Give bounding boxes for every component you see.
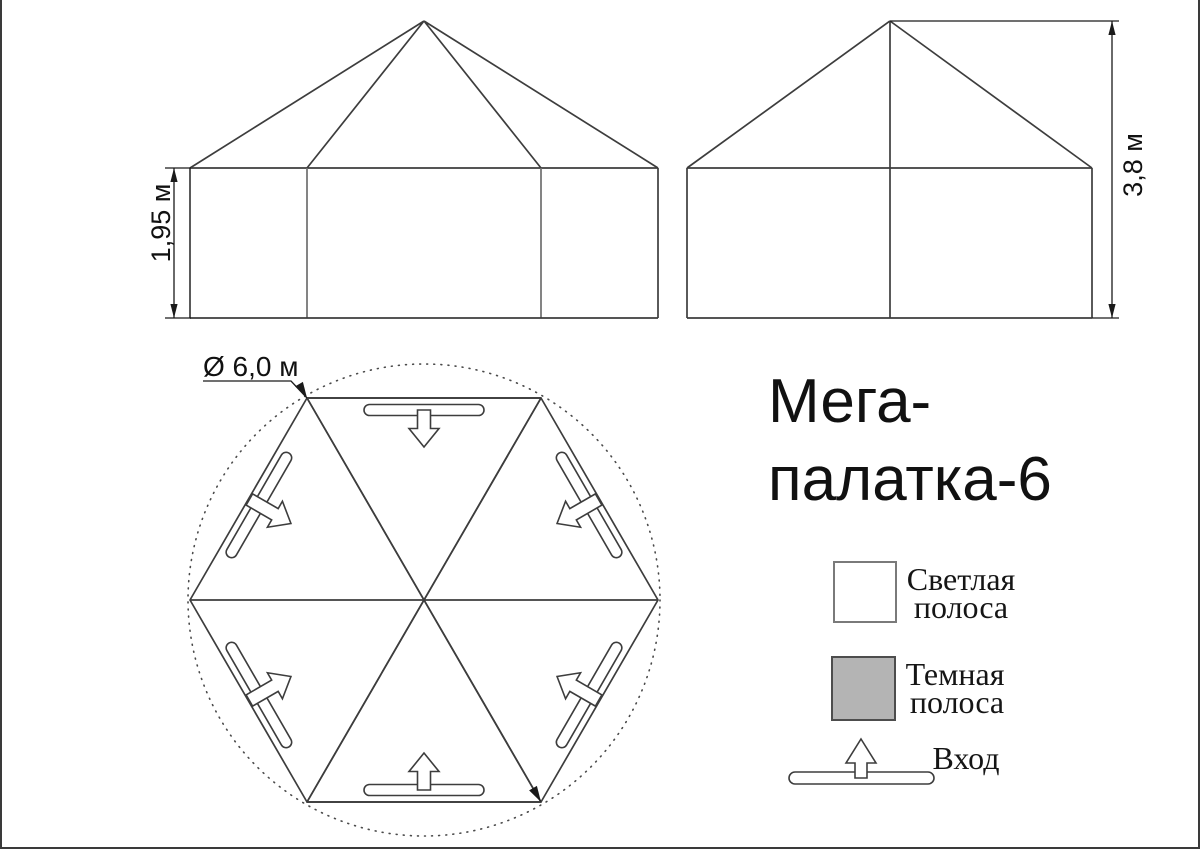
legend-dark-swatch <box>832 657 895 720</box>
tent-technical-drawing-page: 1,95 м 3,8 м <box>0 0 1200 849</box>
dimension-arrow-icon <box>1108 21 1115 35</box>
wall-height-label: 1,95 м <box>146 184 176 263</box>
total-height-label: 3,8 м <box>1118 133 1148 197</box>
legend-item-light-stripe: Светлая полоса <box>834 561 1016 625</box>
diameter-label: Ø 6,0 м <box>203 351 299 382</box>
page-title: Мега- палатка-6 <box>768 367 1052 514</box>
front-elevation-view: 1,95 м <box>146 21 658 318</box>
tent-technical-drawing: 1,95 м 3,8 м <box>0 0 1200 849</box>
title-line-1: Мега- <box>768 367 931 436</box>
leader-line <box>203 381 307 398</box>
total-height-dimension: 3,8 м <box>890 21 1148 318</box>
dimension-arrow-icon <box>1108 304 1115 318</box>
front-roof-lines <box>190 21 658 168</box>
legend-item-entrance: Вход <box>789 739 1000 784</box>
plan-view: Ø 6,0 м <box>188 351 660 836</box>
legend-dark-label-line-2: полоса <box>910 684 1004 720</box>
title-line-2: палатка-6 <box>768 445 1052 514</box>
legend: Светлая полоса Темная полоса Вход <box>789 561 1016 784</box>
legend-entrance-label: Вход <box>932 740 999 776</box>
dimension-arrow-icon <box>295 382 307 398</box>
dimension-arrow-icon <box>170 304 177 318</box>
legend-light-label-line-2: полоса <box>914 589 1008 625</box>
legend-light-swatch <box>834 562 896 622</box>
legend-item-dark-stripe: Темная полоса <box>832 656 1005 720</box>
wall-height-dimension: 1,95 м <box>146 168 191 318</box>
dimension-arrow-icon <box>170 168 177 182</box>
side-elevation-view: 3,8 м <box>687 21 1148 318</box>
